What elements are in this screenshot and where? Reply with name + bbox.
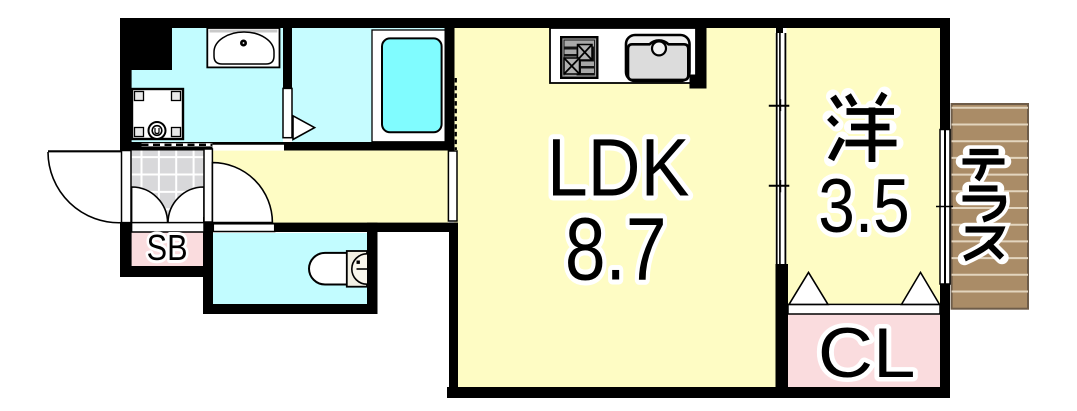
svg-text:CL: CL: [818, 313, 916, 392]
svg-text:3.5: 3.5: [818, 164, 910, 249]
svg-text:8.7: 8.7: [565, 199, 667, 298]
svg-text:SB: SB: [147, 227, 188, 268]
